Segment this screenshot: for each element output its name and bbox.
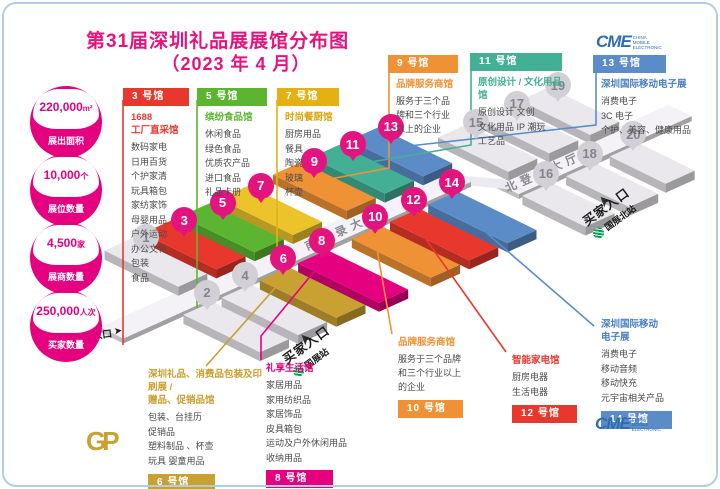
stat-label: 展位数量: [30, 202, 102, 215]
hall-9-desc: 服务于三个品牌和三个行业以上的企业: [396, 94, 458, 136]
hall-6-tag: 6 号馆: [148, 474, 215, 489]
stat-value: 10,000: [44, 168, 81, 182]
hall-box-13: 13 号馆 深圳国际移动电子展 消费电子 3C 电子 个护、美容、健康用品: [593, 55, 713, 138]
stat-value: 4,500: [47, 236, 77, 250]
hall-8-tag: 8 号馆: [266, 470, 333, 488]
hall-11-tag: 11 号馆: [470, 53, 562, 71]
stat-value: 220,000: [39, 100, 82, 114]
stat-area: 220,000m² 展出面积: [30, 86, 102, 158]
stat-exhibitors: 4,500家 展商数量: [30, 222, 102, 294]
hall-box-12: 智能家电馆 厨房电器 生活电器 12 号馆: [504, 354, 578, 423]
hall-box-7: 7 号馆 时尚餐厨馆 厨房用品 餐具 陶瓷 玻璃 杯壶: [277, 88, 339, 200]
hall-box-3: 3 号馆 1688 工厂直采馆 数码家电 日用百货 个护家清 玩具箱包 家纺家饰…: [123, 88, 189, 285]
hall-13-items: 消费电子 3C 电子 个护、美容、健康用品: [601, 94, 713, 138]
hall-9-title: 品牌服务商馆: [396, 78, 458, 91]
hall-5-items: 休闲食品 绿色食品 优质农产品 进口食品 礼品卡册: [205, 127, 267, 200]
hall-6-items: 包装、台挂历 促销品 塑料制品 、杯壶 玩具 婴童用品: [148, 410, 268, 468]
hall-8-items: 家居用品 家用纺织品 家居饰品 皮具箱包 运动及户外休闲用品 收纳用品: [266, 378, 354, 465]
hall-13-title: 深圳国际移动电子展: [601, 78, 713, 91]
hall-5-tag: 5 号馆: [197, 88, 267, 106]
stat-unit: 家: [77, 240, 85, 249]
stat-unit: 个: [80, 172, 88, 181]
hall-box-8: 礼享生活馆 家居用品 家用纺织品 家居饰品 皮具箱包 运动及户外休闲用品 收纳用…: [258, 362, 354, 488]
cme-logo-text: CME: [595, 414, 630, 434]
hall-7-items: 厨房用品 餐具 陶瓷 玻璃 杯壶: [285, 127, 339, 200]
hall-10-title: 品牌服务商馆: [398, 336, 464, 349]
stat-label: 展出面积: [30, 134, 102, 147]
hall-box-9: 9 号馆 品牌服务商馆 服务于三个品牌和三个行业以上的企业: [388, 55, 458, 136]
poster: 1234567891011121314151617181920 第31届深圳礼品…: [0, 0, 720, 489]
hall-10-desc: 服务于三个品牌和三个行业以上的企业: [398, 352, 464, 394]
hall-12-title: 智能家电馆: [512, 354, 578, 367]
hall-box-10: 品牌服务商馆 服务于三个品牌和三个行业以上的企业 10 号馆: [390, 336, 464, 418]
stat-value: 250,000: [36, 304, 79, 318]
cme-logo-text: CME: [596, 32, 631, 52]
page-title: 第31届深圳礼品展展馆分布图: [86, 26, 349, 53]
cme-logo-sub: CHINA MOBILE ELECTRONIC: [632, 414, 661, 432]
hall-box-14: 深圳国际移动 电子展 消费电子 移动音频 移动快充 元宇宙相关产品 14 号馆: [593, 318, 693, 429]
cme-logo-sub: CHINA MOBILE ELECTRONIC: [633, 32, 662, 50]
hall-12-tag: 12 号馆: [512, 405, 577, 423]
gp-logo: GP: [86, 426, 116, 457]
stat-label: 买家数量: [30, 338, 102, 351]
stat-buyers: 250,000人次 买家数量: [30, 290, 102, 362]
hall-box-6: 深圳礼品、消费品包装及印刷展 / 赠品、促销品馆 包装、台挂历 促销品 塑料制品…: [140, 368, 268, 489]
hall-box-5: 5 号馆 缤纷食品馆 休闲食品 绿色食品 优质农产品 进口食品 礼品卡册: [197, 88, 267, 200]
hall-6-title: 深圳礼品、消费品包装及印刷展 / 赠品、促销品馆: [148, 368, 268, 407]
hall-13-tag: 13 号馆: [593, 55, 666, 73]
hall-7-tag: 7 号馆: [277, 88, 339, 106]
hall-12-items: 厨房电器 生活电器: [512, 370, 578, 399]
hall-14-title: 深圳国际移动 电子展: [601, 318, 693, 344]
hall-5-title: 缤纷食品馆: [205, 111, 267, 124]
stat-unit: m²: [83, 104, 93, 113]
right-arrow-icon: ➤: [113, 326, 123, 338]
hall-11-title: 原创设计 / 文化用品馆: [478, 76, 562, 102]
hall-7-title: 时尚餐厨馆: [285, 111, 339, 124]
hall-box-11: 11 号馆 原创设计 / 文化用品馆 原创设计 文创 文化用品 IP 潮玩 工艺…: [470, 53, 562, 149]
hall-11-items: 原创设计 文创 文化用品 IP 潮玩 工艺品: [478, 105, 562, 149]
hall-8-title: 礼享生活馆: [266, 362, 354, 375]
stat-unit: 人次: [80, 308, 96, 317]
cme-logo: CME CHINA MOBILE ELECTRONIC: [596, 32, 662, 52]
stat-label: 展商数量: [30, 270, 102, 283]
hall-3-items: 数码家电 日用百货 个护家清 玩具箱包 家纺家饰 母婴用品 户外运动 办公文化 …: [131, 140, 189, 285]
hall-3-tag: 3 号馆: [123, 88, 189, 106]
hall-10-tag: 10 号馆: [398, 400, 463, 418]
page-subtitle: （2023 年 4 月）: [86, 50, 386, 76]
hall-3-title: 1688 工厂直采馆: [131, 111, 189, 137]
hall-14-items: 消费电子 移动音频 移动快充 元宇宙相关产品: [601, 347, 693, 405]
cme-logo-bottom: CME CHINA MOBILE ELECTRONIC: [595, 414, 661, 434]
stat-booths: 10,000个 展位数量: [30, 154, 102, 226]
hall-9-tag: 9 号馆: [388, 55, 458, 73]
